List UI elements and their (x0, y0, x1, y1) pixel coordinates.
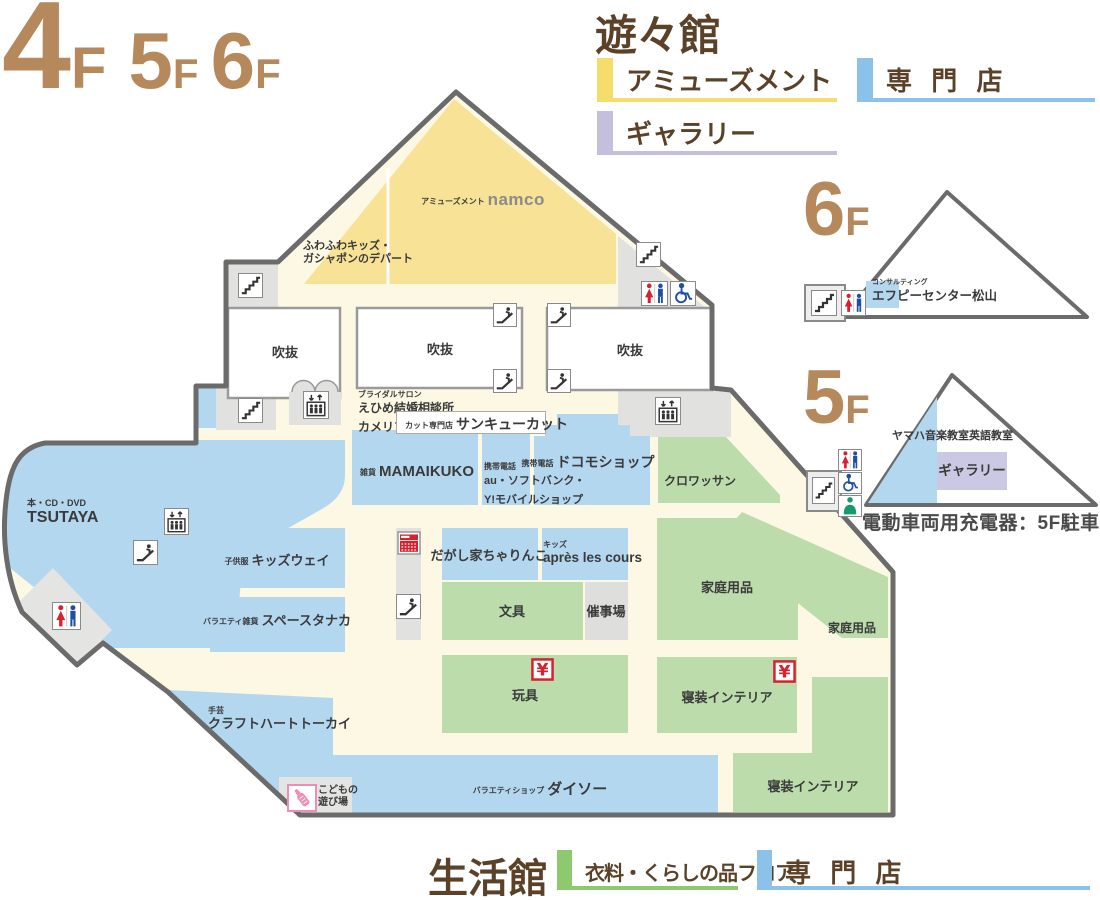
floor-indicator: 4F5F6F (2, 0, 281, 108)
fuwafuwa-line1: ふわふわキッズ・ (303, 240, 391, 252)
toilet-icon (838, 449, 862, 471)
bridal-category: ブライダルサロン (358, 390, 454, 399)
inset-5f-suffix: F (845, 388, 869, 432)
area-label-household-main: 家庭用品 (701, 580, 753, 595)
namco-category: アミューズメント (421, 197, 484, 206)
stairs-icon (238, 273, 263, 298)
area-label-kids-play: こどもの 遊び場 (318, 785, 358, 809)
store-label-sankyu-cut: カット専門店サンキューカット (396, 411, 546, 434)
area-label-household-edge: 家庭用品 (828, 621, 876, 635)
escalator-icon (547, 303, 571, 327)
namco-name: namco (488, 190, 545, 209)
toilet-icon (841, 290, 866, 316)
elevator-icon (655, 397, 681, 425)
baby-bottle-icon (287, 784, 317, 812)
craftheart-category: 手芸 (208, 706, 351, 715)
fp-center-category: コンサルティング (872, 279, 997, 287)
kidsway-name: キッズウェイ (251, 553, 329, 568)
area-label-bedding-corner: 寝装インテリア (767, 779, 858, 794)
legend-specialty-bottom-label: 専 門 店 (785, 858, 907, 888)
legend-amusement-label: アミューズメント (626, 66, 832, 96)
fp-center-name: エフピーセンター松山 (872, 289, 997, 303)
stairs-icon (636, 242, 661, 267)
store-label-croissant: クロワッサン (664, 474, 736, 488)
store-label-kidsway: 子供服キッズウェイ (224, 552, 329, 571)
floor-6-number: 6 (211, 16, 256, 105)
legend-specialty-top-label: 専 門 店 (886, 66, 1008, 96)
photo-machine-icon (396, 530, 422, 556)
legend-gallery: ギャラリー (597, 111, 837, 155)
inset-5f-num: 5 (803, 355, 845, 440)
escalator-icon (133, 540, 158, 565)
escalator-icon (493, 303, 517, 327)
void-label-right: 吹抜 (617, 343, 643, 358)
store-label-fuwafuwa: ふわふわキッズ・ ガシャポンのデパート (303, 240, 413, 266)
floor-4-suffix: F (71, 36, 106, 101)
toilet-icon (641, 281, 668, 306)
store-label-dagashiya: だがし家ちゃりんこ (430, 548, 547, 563)
legend-amusement: アミューズメント (597, 58, 837, 102)
store-label-apres: キッズ après les cours (543, 540, 642, 568)
docomo-name: ドコモショップ (557, 454, 655, 470)
mobile-line2: Y!モバイルショップ (484, 494, 583, 506)
toilet-icon (52, 602, 81, 630)
legend-gallery-label: ギャラリー (626, 119, 756, 149)
area-label-gallery: ギャラリー (938, 463, 1006, 479)
store-label-fp-center: コンサルティング エフピーセンター松山 (872, 279, 997, 306)
floor-map-page: 4F5F6F 遊々館 アミューズメント 専 門 店 ギャラリー 生活館 衣料・く… (0, 0, 1100, 900)
elevator-icon (164, 508, 189, 535)
legend-specialty-top: 専 門 店 (857, 58, 1095, 102)
stairs-icon (812, 477, 835, 504)
void-label-middle: 吹抜 (427, 342, 453, 357)
svg-text:¥: ¥ (778, 663, 790, 683)
spacetanaka-category: バラエティ雑貨 (203, 617, 259, 626)
void-label-left: 吹抜 (272, 345, 298, 360)
docomo-category: 携帯電話 (522, 459, 554, 468)
mamaikuko-name: MAMAIKUKO (379, 463, 474, 480)
kids-play-line2: 遊び場 (318, 797, 348, 808)
inset-6f-suffix: F (845, 200, 869, 244)
store-label-craftheart: 手芸 クラフトハートトーカイ (208, 706, 351, 734)
store-label-daiso: バラエティショップダイソー (473, 781, 608, 800)
mamaikuko-category: 雑貨 (360, 468, 376, 477)
store-label-mamaikuko: 雑貨MAMAIKUKO (360, 463, 474, 482)
escalator-icon (396, 594, 421, 619)
escalator-icon (493, 369, 517, 393)
apres-category: キッズ (543, 540, 642, 549)
spacetanaka-name: スペースタナカ (262, 613, 351, 628)
escalator-icon (547, 369, 571, 393)
floor-5-suffix: F (173, 50, 199, 97)
wheelchair-icon (670, 281, 696, 306)
building-title-yuyukan: 遊々館 (595, 2, 721, 63)
apres-name: après les cours (543, 550, 642, 565)
craftheart-name: クラフトハートトーカイ (208, 716, 351, 731)
daiso-category: バラエティショップ (473, 786, 545, 795)
store-label-namco: アミューズメントnamco (421, 190, 545, 211)
kids-play-line1: こどもの (318, 785, 358, 796)
elevator-icon (303, 391, 329, 419)
yen-register-icon: ¥ (531, 658, 554, 681)
nursing-room-icon (838, 495, 862, 517)
cut-name: サンキューカット (456, 416, 568, 432)
stairs-icon (238, 398, 263, 423)
floor-4-number: 4 (2, 0, 71, 115)
legend-specialty-bottom: 専 門 店 (757, 850, 1090, 890)
fuwafuwa-line2: ガシャポンのデパート (303, 253, 413, 265)
store-label-yamaha: ヤマハ音楽教室英語教室 (892, 430, 1013, 443)
tsutaya-name: TSUTAYA (27, 509, 98, 526)
mobile-line1: au・ソフトバンク・ (484, 475, 585, 487)
store-label-spacetanaka: バラエティ雑貨スペースタナカ (203, 612, 351, 631)
stairs-icon (811, 290, 837, 316)
building-title-seikatsukan: 生活館 (428, 846, 548, 900)
area-label-stationery: 文具 (499, 604, 525, 619)
area-label-bedding-main: 寝装インテリア (681, 690, 772, 705)
inset-6f-num: 6 (803, 167, 845, 252)
wheelchair-icon (838, 472, 862, 494)
legend-clothing-living: 衣料・くらしの品フロア (557, 850, 738, 890)
inset-5f-floor-number: 5F (803, 360, 870, 436)
inset-6f-floor-number: 6F (803, 172, 870, 248)
floor-5-number: 5 (128, 16, 173, 105)
area-label-toys: 玩具 (512, 688, 538, 703)
daiso-name: ダイソー (547, 781, 607, 798)
kidsway-category: 子供服 (224, 557, 248, 566)
tsutaya-category: 本・CD・DVD (27, 498, 98, 509)
yen-register-icon: ¥ (773, 660, 796, 683)
floor-map-canvas (0, 0, 1100, 900)
area-label-event-space: 催事場 (586, 604, 625, 619)
cut-category: カット専門店 (405, 421, 453, 430)
store-label-docomo: 携帯電話ドコモショップ (522, 454, 655, 473)
store-label-tsutaya: 本・CD・DVD TSUTAYA (27, 498, 98, 527)
floor-6-suffix: F (255, 50, 281, 97)
ev-charger-note: 電動車両用充電器：5F駐車場 (862, 513, 1100, 535)
blue-notch-midleft (197, 388, 216, 428)
svg-text:¥: ¥ (536, 661, 548, 681)
